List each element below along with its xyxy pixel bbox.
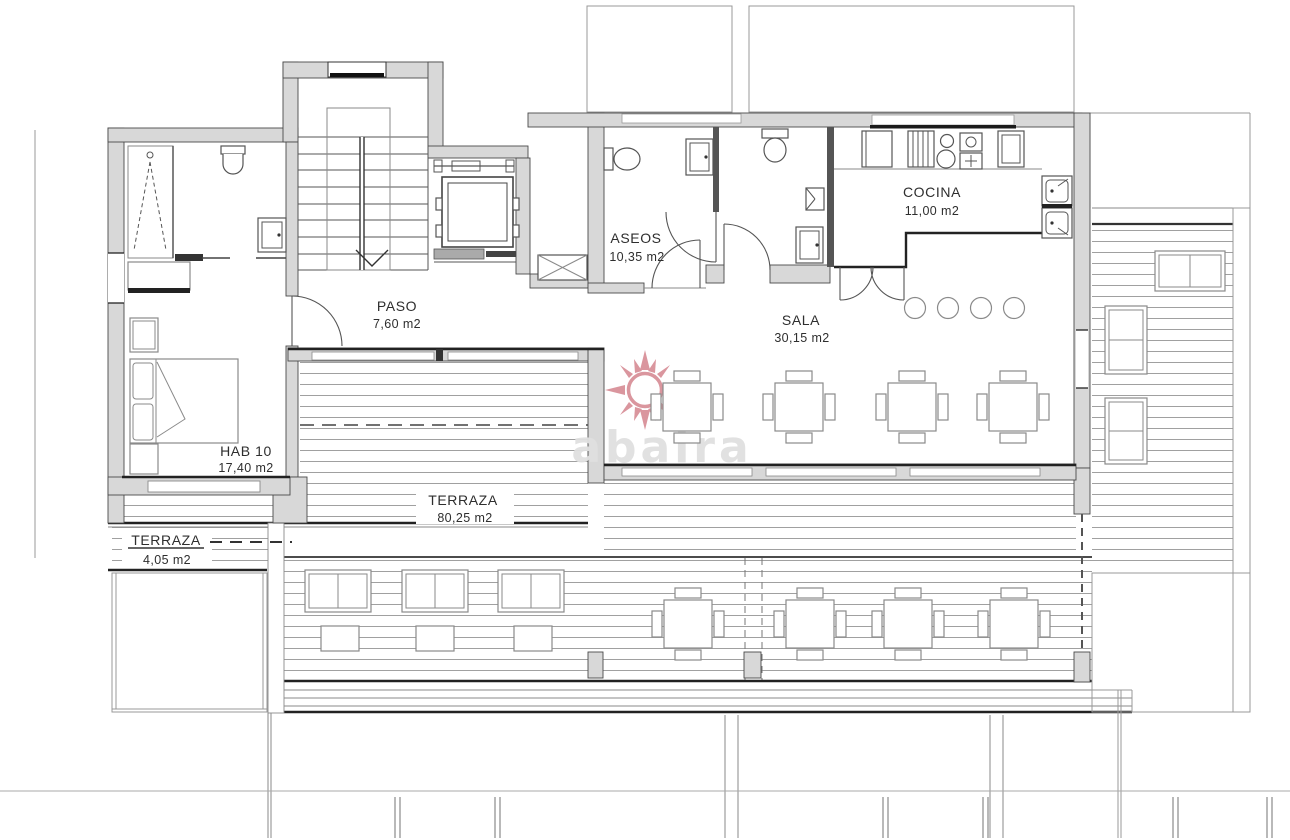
window-sala-east: [1076, 330, 1088, 388]
window-aseos: [622, 114, 741, 123]
wall-aseos-south-stub: [588, 283, 644, 293]
kitchen-west-partition: [827, 127, 834, 267]
watermark-text: abaira: [571, 422, 752, 473]
wall-west: [108, 128, 124, 523]
floor-plan-drawing: abaira: [0, 0, 1290, 840]
stairs-icon: [298, 62, 428, 270]
kitchen-fixtures: [834, 131, 1072, 319]
wall-hab-east-upper: [286, 142, 298, 296]
slider-sala-b: [766, 468, 896, 476]
hob-icon: [960, 133, 982, 151]
wall-aseos-south-b: [770, 265, 830, 283]
dining-table-icon: [977, 371, 1049, 443]
room-area-terraza-small: 4,05 m2: [143, 553, 191, 567]
elevator-wall-east: [516, 158, 530, 274]
dining-table-icon: [876, 371, 948, 443]
toilet-icon: [604, 148, 613, 170]
room-label-terraza-small: TERRAZA: [131, 532, 201, 548]
vanity: [128, 262, 190, 290]
room-area-sala: 30,15 m2: [774, 331, 829, 345]
ensuite-bathroom: [128, 146, 286, 293]
window-bath-west: [108, 253, 124, 303]
toilet-icon: [762, 129, 788, 138]
stair-railing: [327, 108, 390, 270]
room-area-cocina: 11,00 m2: [905, 204, 959, 218]
lower-platform-left: [112, 573, 267, 712]
lower-platform-right: [1092, 573, 1250, 712]
sun-lounger-icon: [305, 570, 371, 612]
room-area-aseos: 10,35 m2: [609, 250, 664, 264]
window-hab-south: [148, 481, 260, 492]
nightstand: [130, 444, 158, 474]
room-label-paso: PASO: [377, 298, 417, 314]
stairwell-wall-east: [428, 62, 443, 158]
slider-paso-a: [312, 352, 434, 360]
side-table: [514, 626, 552, 651]
wall-east: [1074, 113, 1090, 468]
elevator-icon: [434, 160, 519, 262]
nightstand: [130, 318, 158, 352]
wall-north-left: [108, 128, 298, 142]
floor-plan-page: abaira: [0, 0, 1290, 840]
sun-lounger-icon: [402, 570, 468, 612]
room-label-terraza: TERRAZA: [428, 492, 498, 508]
side-table: [321, 626, 359, 651]
wall-aseos-south-a: [706, 265, 724, 283]
oven-icon: [908, 131, 934, 167]
deck-divider-column: [268, 523, 284, 713]
elevator-wall-north: [428, 146, 528, 158]
sink-icon: [941, 135, 954, 148]
wall-hab-east-lower: [286, 346, 298, 477]
dining-table-icon: [763, 371, 835, 443]
room-area-hab10: 17,40 m2: [218, 461, 273, 475]
room-label-sala: SALA: [782, 312, 820, 328]
bed-icon: [130, 359, 238, 443]
slider-paso-b: [448, 352, 578, 360]
bar-stool-icon: [905, 298, 1025, 319]
pillar-terrace-1: [588, 652, 603, 678]
room-label-aseos: ASEOS: [610, 230, 661, 246]
deck-below-sala: [604, 483, 1076, 556]
toilet-icon: [221, 146, 245, 154]
slider-sala-c: [910, 468, 1040, 476]
room-label-cocina: COCINA: [903, 184, 961, 200]
room-label-hab10: HAB 10: [220, 443, 272, 459]
room-area-paso: 7,60 m2: [373, 317, 421, 331]
aseos-partition: [713, 127, 719, 212]
wall-mid-vertical: [588, 113, 604, 288]
window-cocina: [872, 115, 1014, 125]
right-deck-border: [1233, 208, 1250, 712]
wall-stub: [175, 254, 203, 261]
room-area-terraza: 80,25 m2: [437, 511, 492, 525]
duct-icon: [538, 255, 587, 280]
window-cocina-sill: [870, 125, 1016, 129]
pillar-terrace-2: [744, 652, 761, 678]
side-table: [416, 626, 454, 651]
sun-lounger-icon: [498, 570, 564, 612]
grid-ticks: [395, 797, 1272, 838]
kitchen-peninsula: [834, 233, 1043, 267]
pillar-east-2: [1074, 652, 1090, 682]
